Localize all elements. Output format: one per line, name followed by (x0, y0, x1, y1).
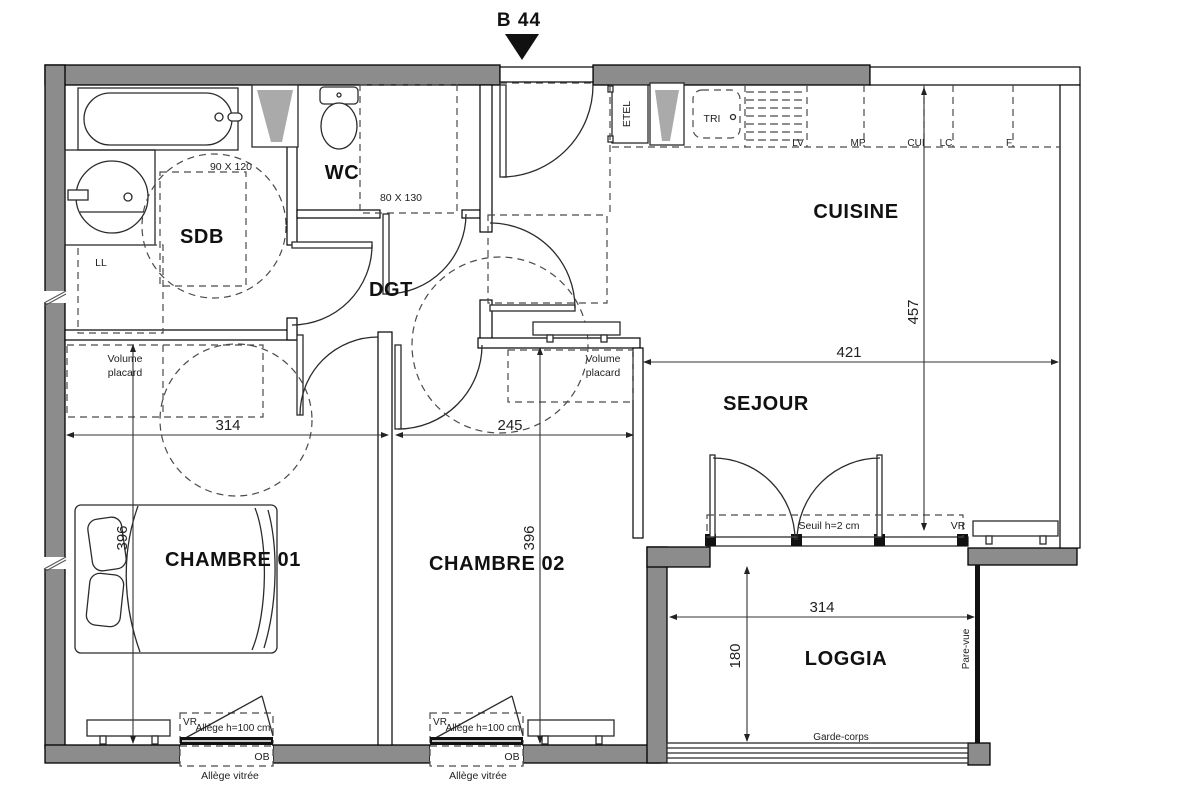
sdb-fixtures (65, 85, 298, 333)
wall-bottom-c (523, 745, 660, 763)
placards (67, 257, 633, 496)
dim-loggia-depth: 180 (727, 643, 744, 668)
dim-ch2-width: 245 (497, 417, 522, 434)
pare-vue-screen (975, 565, 980, 743)
placard-chambre1 (67, 345, 263, 417)
sdb-door-swing (292, 245, 372, 325)
toilet-tank (320, 87, 358, 104)
sink-drainer-hatch (746, 92, 802, 140)
pillow-2 (85, 572, 124, 627)
wall-sejour-west (633, 348, 643, 538)
wall-top-left (45, 65, 500, 85)
label-placard2-line2: placard (586, 367, 621, 379)
room-label-sdb: SDB (180, 226, 224, 248)
wall-sdb-chambre1 (65, 330, 297, 340)
doors (292, 83, 968, 546)
room-label-wc: WC (325, 162, 360, 184)
wall-right (1060, 85, 1080, 548)
wall-left (45, 65, 65, 748)
dim-ch1-width: 314 (215, 417, 240, 434)
label-vr-sejour: VR (951, 520, 966, 532)
floor-plan: B 44 SDB WC DGT CUISINE SEJOUR CHAMBRE 0… (0, 0, 1187, 800)
toilet-bowl (321, 103, 357, 149)
bed (75, 505, 277, 653)
label-lc: LC (940, 138, 953, 149)
label-ll: LL (95, 257, 107, 269)
label-placard2-line1: Volume (585, 353, 620, 365)
wall-loggia-left (647, 547, 667, 763)
entry-door-leaf (500, 85, 506, 177)
wall-sejour-se (968, 548, 1077, 565)
dim-cuisine-depth: 457 (905, 299, 922, 324)
dim-ch1-depth: 396 (114, 525, 131, 550)
wall-wc-south (297, 210, 380, 218)
label-lv: LV (792, 138, 804, 149)
sink-tap (731, 115, 736, 120)
label-ob-chambre1: OB (254, 751, 269, 763)
sill-block-2 (791, 534, 802, 546)
label-allege-vitree-chambre2: Allège vitrée (449, 770, 507, 782)
washbasin-tap (68, 190, 88, 200)
french-door-right-leaf (877, 455, 882, 537)
wall-sdb-stub (287, 318, 297, 340)
wall-chambre1-chambre2 (378, 332, 392, 745)
exterior-walls (44, 65, 1077, 765)
sejour-door-leaf (490, 305, 575, 311)
sdb-door-leaf (292, 242, 372, 248)
chambre2-door-leaf (395, 345, 401, 429)
dim-sejour-width: 421 (836, 344, 861, 361)
wall-chambre2-north (478, 338, 640, 348)
chambre2-door-swing (398, 345, 482, 429)
entry-lintel (500, 67, 593, 82)
label-placard1-line2: placard (108, 367, 143, 379)
entry-door-swing (503, 85, 593, 177)
label-tri: TRI (704, 113, 721, 125)
label-allege-chambre1: Allège h=100 cm (196, 723, 271, 734)
room-label-dgt: DGT (369, 279, 413, 301)
room-label-chambre1: CHAMBRE 01 (165, 549, 301, 571)
room-label-sejour: SEJOUR (723, 393, 809, 415)
wall-top-right-thin (870, 67, 1080, 85)
radiator-chambre2 (528, 720, 614, 744)
label-f: F (1006, 138, 1012, 149)
room-label-chambre2: CHAMBRE 02 (429, 553, 565, 575)
french-door-left-leaf (710, 455, 715, 537)
room-label-loggia: LOGGIA (805, 648, 888, 670)
wall-bottom-a (45, 745, 180, 763)
label-mp: MP (851, 138, 866, 149)
bathtub-tap (228, 113, 242, 121)
dim-loggia-width: 314 (809, 599, 834, 616)
label-allege-chambre2: Allège h=100 cm (446, 723, 521, 734)
label-cui: CUI (907, 138, 924, 149)
wall-loggia-stub (647, 547, 710, 567)
wall-wc-east (480, 85, 492, 232)
bathtub (78, 88, 238, 150)
dim-ch2-depth: 396 (521, 525, 538, 550)
loggia-post (968, 743, 990, 765)
label-wc-clearance: 80 X 130 (380, 192, 422, 204)
label-sdb-clearance: 90 X 120 (210, 161, 252, 173)
wall-wc-south-jamb (462, 210, 480, 218)
label-pare-vue: Pare-vue (961, 628, 972, 669)
guardrail (667, 743, 968, 763)
entry-marker-icon (505, 34, 539, 60)
loggia-elements (667, 515, 980, 763)
label-seuil: Seuil h=2 cm (799, 520, 860, 532)
floor-plan-svg: B 44 SDB WC DGT CUISINE SEJOUR CHAMBRE 0… (0, 0, 1187, 800)
chambre1-door-leaf (297, 335, 303, 415)
label-placard1-line1: Volume (107, 353, 142, 365)
label-garde-corps: Garde-corps (813, 732, 869, 743)
label-allege-vitree-chambre1: Allège vitrée (201, 770, 259, 782)
unit-title: B 44 (497, 10, 541, 31)
label-ob-chambre2: OB (504, 751, 519, 763)
wall-top-right (593, 65, 870, 85)
radiator-chambre1 (87, 720, 170, 744)
sejour-door-swing (490, 223, 575, 308)
room-label-cuisine: CUISINE (813, 201, 898, 223)
kitchen-fixtures (608, 83, 1060, 215)
label-etel: ETEL (621, 101, 633, 127)
sejour-door-clearance (488, 215, 607, 303)
chambre1-door-swing (300, 337, 378, 415)
radiator-sejour (973, 521, 1058, 544)
wall-bottom-b (273, 745, 430, 763)
french-door-left-swing (713, 458, 795, 540)
